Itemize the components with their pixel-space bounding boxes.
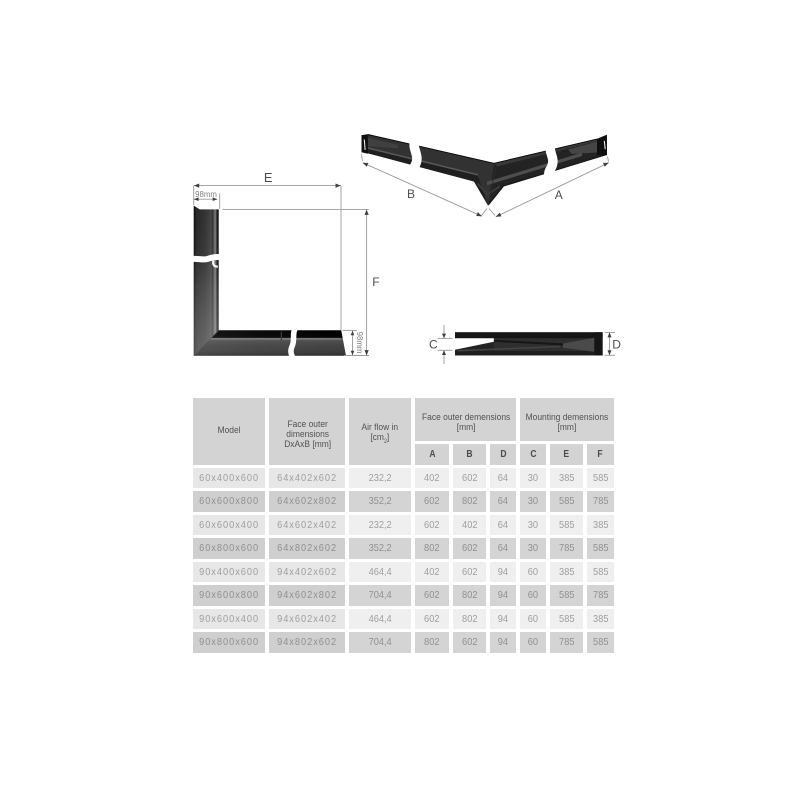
svg-text:D: D — [612, 337, 621, 351]
svg-text:F: F — [372, 275, 379, 289]
svg-text:98mm: 98mm — [355, 332, 364, 354]
svg-text:98mm: 98mm — [195, 190, 217, 199]
svg-text:B: B — [407, 187, 415, 201]
svg-text:A: A — [555, 188, 563, 202]
svg-text:E: E — [264, 170, 273, 185]
svg-text:C: C — [429, 337, 438, 351]
